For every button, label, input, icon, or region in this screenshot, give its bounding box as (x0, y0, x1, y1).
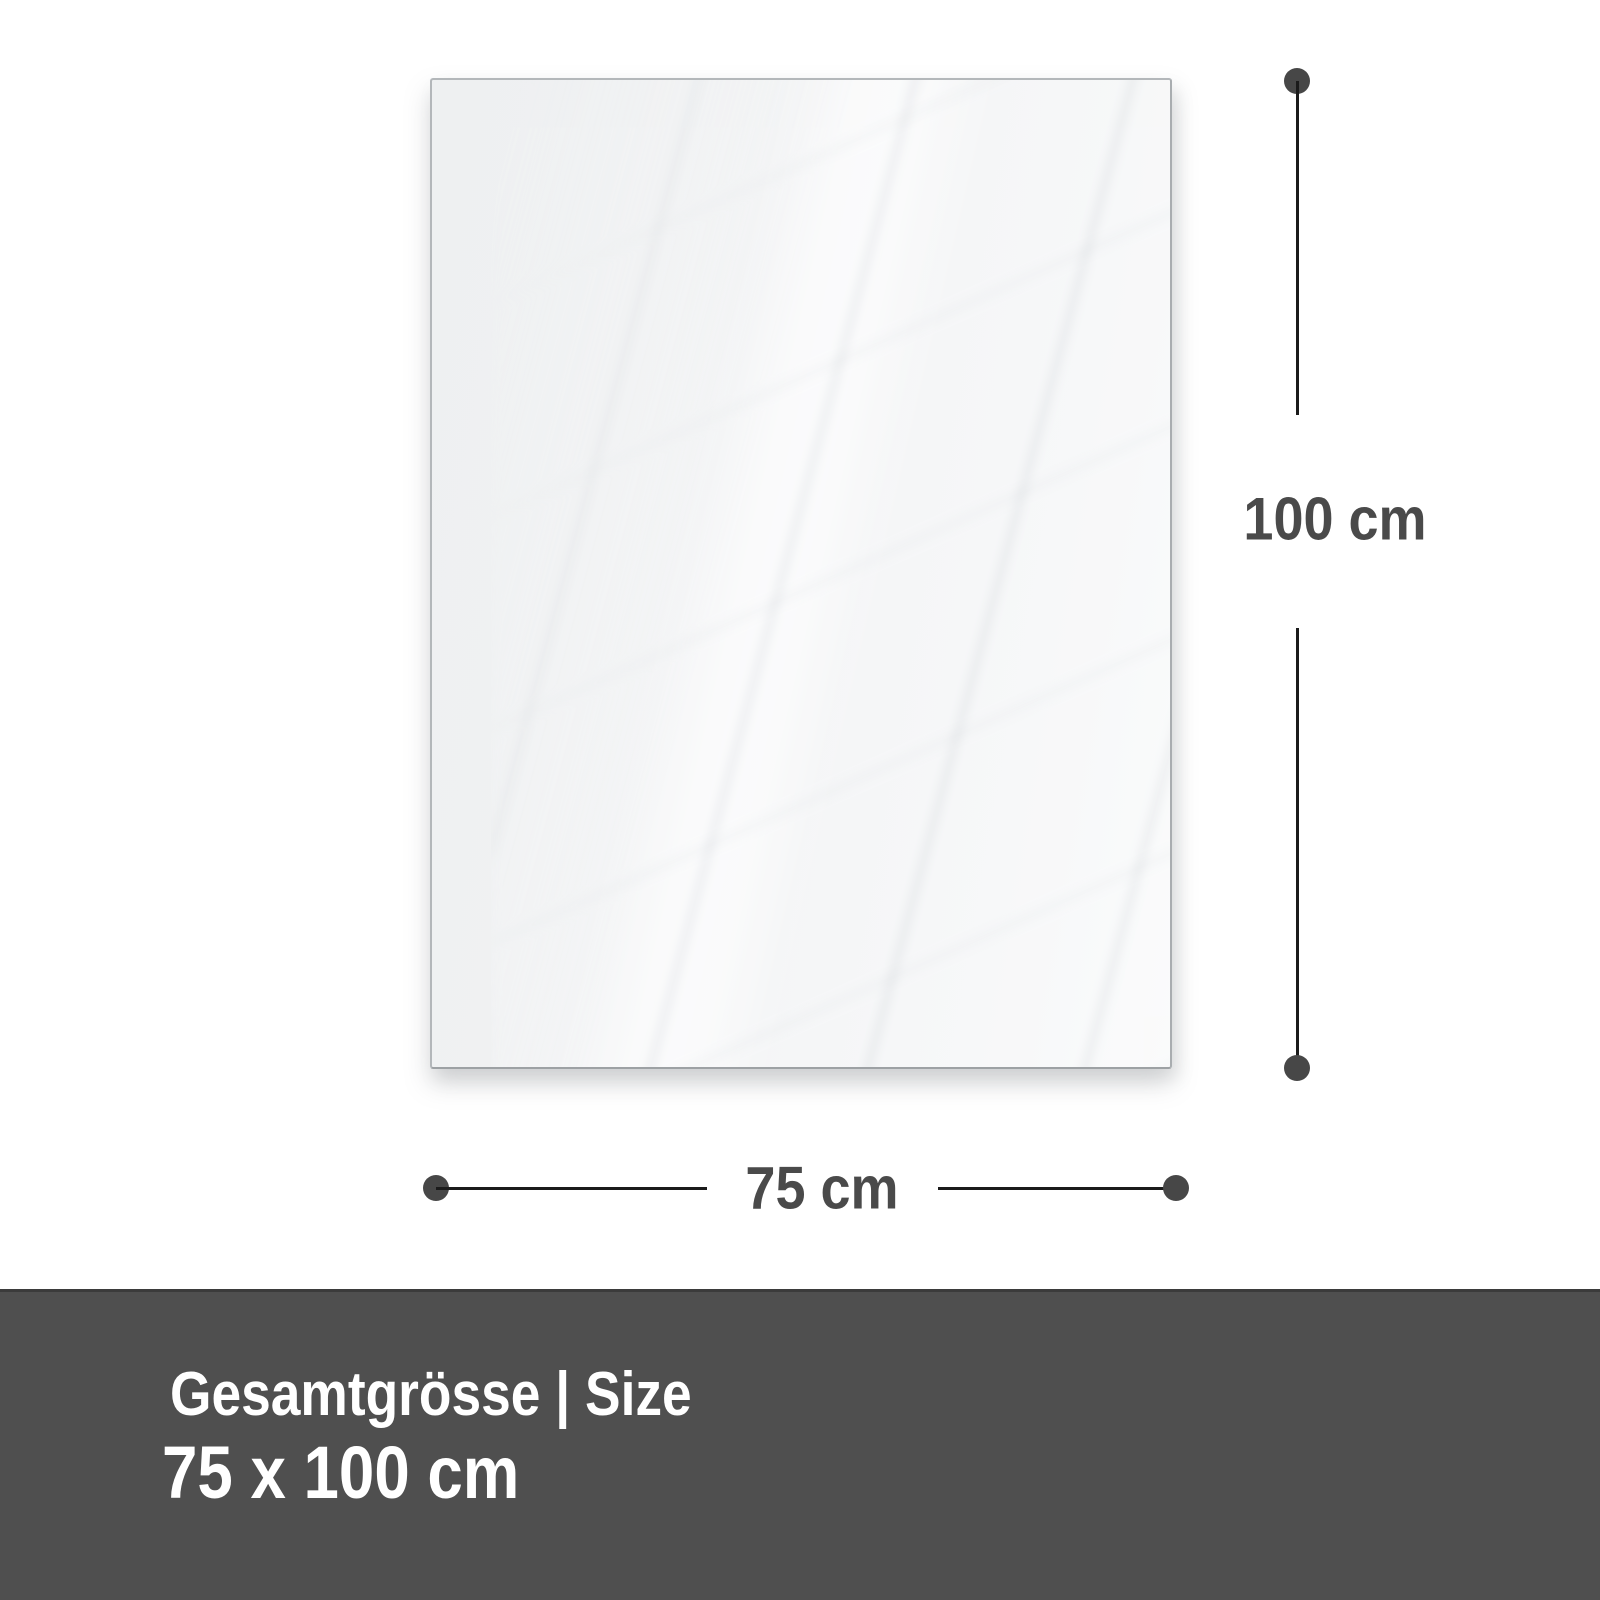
height-dimension-bottom-dot-icon (1284, 1055, 1310, 1081)
product-size-diagram: 100 cm 75 cm Gesamtgrösse | Size 75 x 10… (0, 0, 1600, 1600)
width-dimension-left-line (436, 1187, 707, 1190)
glass-panel (430, 78, 1172, 1069)
window-reflection-grid (491, 78, 1172, 1069)
height-dimension-upper-line (1296, 81, 1299, 415)
width-dimension-right-dot-icon (1163, 1175, 1189, 1201)
height-dimension-lower-line (1296, 628, 1299, 1068)
width-dimension-label: 75 cm (745, 1154, 898, 1223)
width-dimension-right-line (938, 1187, 1176, 1190)
height-dimension-label: 100 cm (1243, 485, 1426, 554)
size-info-heading: Gesamtgrösse | Size (170, 1364, 692, 1426)
size-info-value: 75 x 100 cm (162, 1436, 519, 1510)
